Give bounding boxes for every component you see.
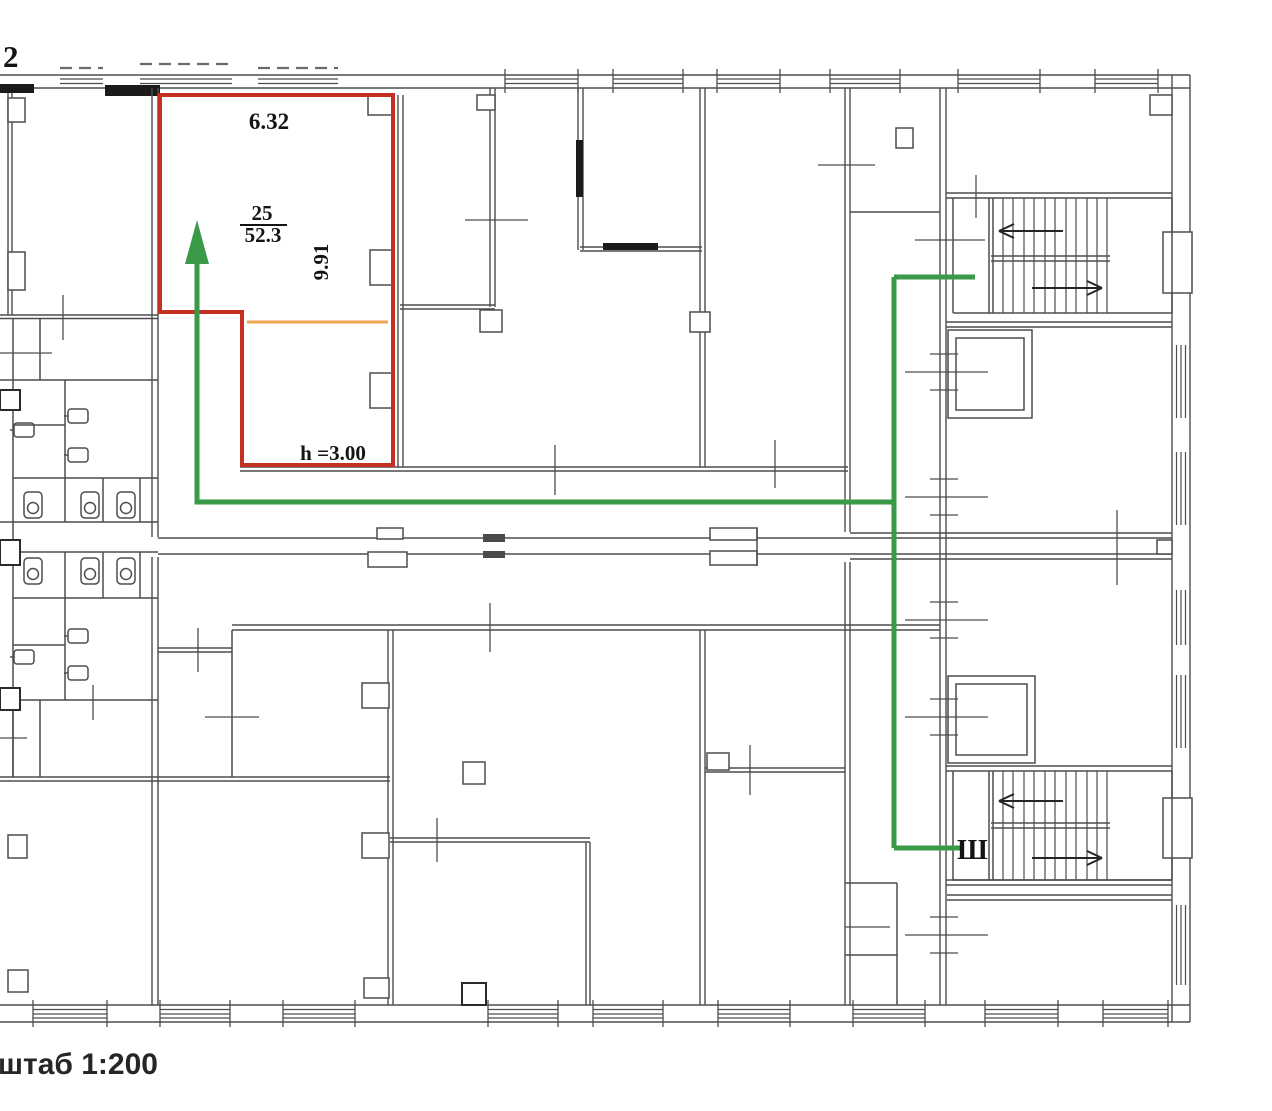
column bbox=[0, 540, 20, 565]
toilet-icon bbox=[117, 492, 135, 518]
door-mark bbox=[1157, 540, 1172, 554]
highlight-room-niches bbox=[368, 95, 394, 408]
stair-down-arrow-icon bbox=[1032, 851, 1102, 865]
door-leaf bbox=[603, 243, 658, 250]
toilet-icon bbox=[24, 558, 42, 584]
toilet-icon bbox=[81, 492, 99, 518]
floor-plan-drawing: 2 6.32 25 52.3 9.91 h =3.00 Ш штаб 1:200 bbox=[0, 0, 1272, 1111]
exit-door-niche bbox=[1163, 232, 1192, 293]
labels: 2 6.32 25 52.3 9.91 h =3.00 Ш штаб 1:200 bbox=[0, 39, 988, 1081]
room-number-label: 25 bbox=[252, 201, 273, 225]
shaft-box bbox=[463, 762, 485, 784]
door-jamb bbox=[710, 528, 757, 540]
route-path bbox=[197, 262, 975, 848]
left-lower-rooms bbox=[8, 835, 28, 992]
room-depth-dimension: 9.91 bbox=[309, 244, 333, 281]
outer-wall-top bbox=[0, 64, 1190, 96]
door-leaf bbox=[576, 140, 583, 197]
right-column-wall bbox=[905, 88, 988, 1005]
left-spine-wall bbox=[152, 88, 158, 1005]
sink-icon bbox=[64, 629, 88, 643]
door-jamb bbox=[368, 552, 407, 567]
floor-plan-page: 2 6.32 25 52.3 9.91 h =3.00 Ш штаб 1:200 bbox=[0, 0, 1272, 1111]
toilet-icon bbox=[117, 558, 135, 584]
door-jamb bbox=[377, 528, 403, 539]
corridor bbox=[158, 510, 1172, 585]
door-mark bbox=[483, 551, 505, 558]
sink-icon bbox=[64, 409, 88, 423]
staircase-top bbox=[953, 198, 1172, 313]
left-upper-room bbox=[0, 93, 158, 380]
door-mark bbox=[483, 534, 505, 542]
center-bottom-rooms bbox=[158, 562, 940, 1005]
sink-icon bbox=[64, 666, 88, 680]
column bbox=[0, 390, 20, 410]
floor-number-label: 2 bbox=[3, 39, 19, 74]
door-jamb bbox=[710, 551, 757, 565]
ceiling-height-label: h =3.00 bbox=[300, 441, 366, 465]
stair-up-arrow-icon bbox=[999, 794, 1063, 808]
column bbox=[462, 983, 486, 1005]
route-arrow-icon bbox=[185, 220, 209, 264]
sink-icon bbox=[10, 650, 34, 664]
stair-up-arrow-icon bbox=[999, 224, 1063, 238]
staircase-label: Ш bbox=[957, 835, 988, 866]
plan-walls bbox=[0, 64, 1192, 1027]
exit-door-niche bbox=[1163, 798, 1192, 858]
outer-wall-bottom bbox=[0, 1000, 1190, 1027]
room-area-label: 52.3 bbox=[245, 223, 282, 247]
room-width-dimension: 6.32 bbox=[249, 109, 289, 134]
stair-down-arrow-icon bbox=[1032, 281, 1102, 295]
watermark-artifact bbox=[60, 64, 338, 68]
scale-label: штаб 1:200 bbox=[0, 1048, 158, 1081]
column bbox=[0, 688, 20, 710]
wall-thick-segment bbox=[0, 84, 34, 93]
sink-icon bbox=[64, 448, 88, 462]
toilet-icon bbox=[24, 492, 42, 518]
toilet-icon bbox=[81, 558, 99, 584]
